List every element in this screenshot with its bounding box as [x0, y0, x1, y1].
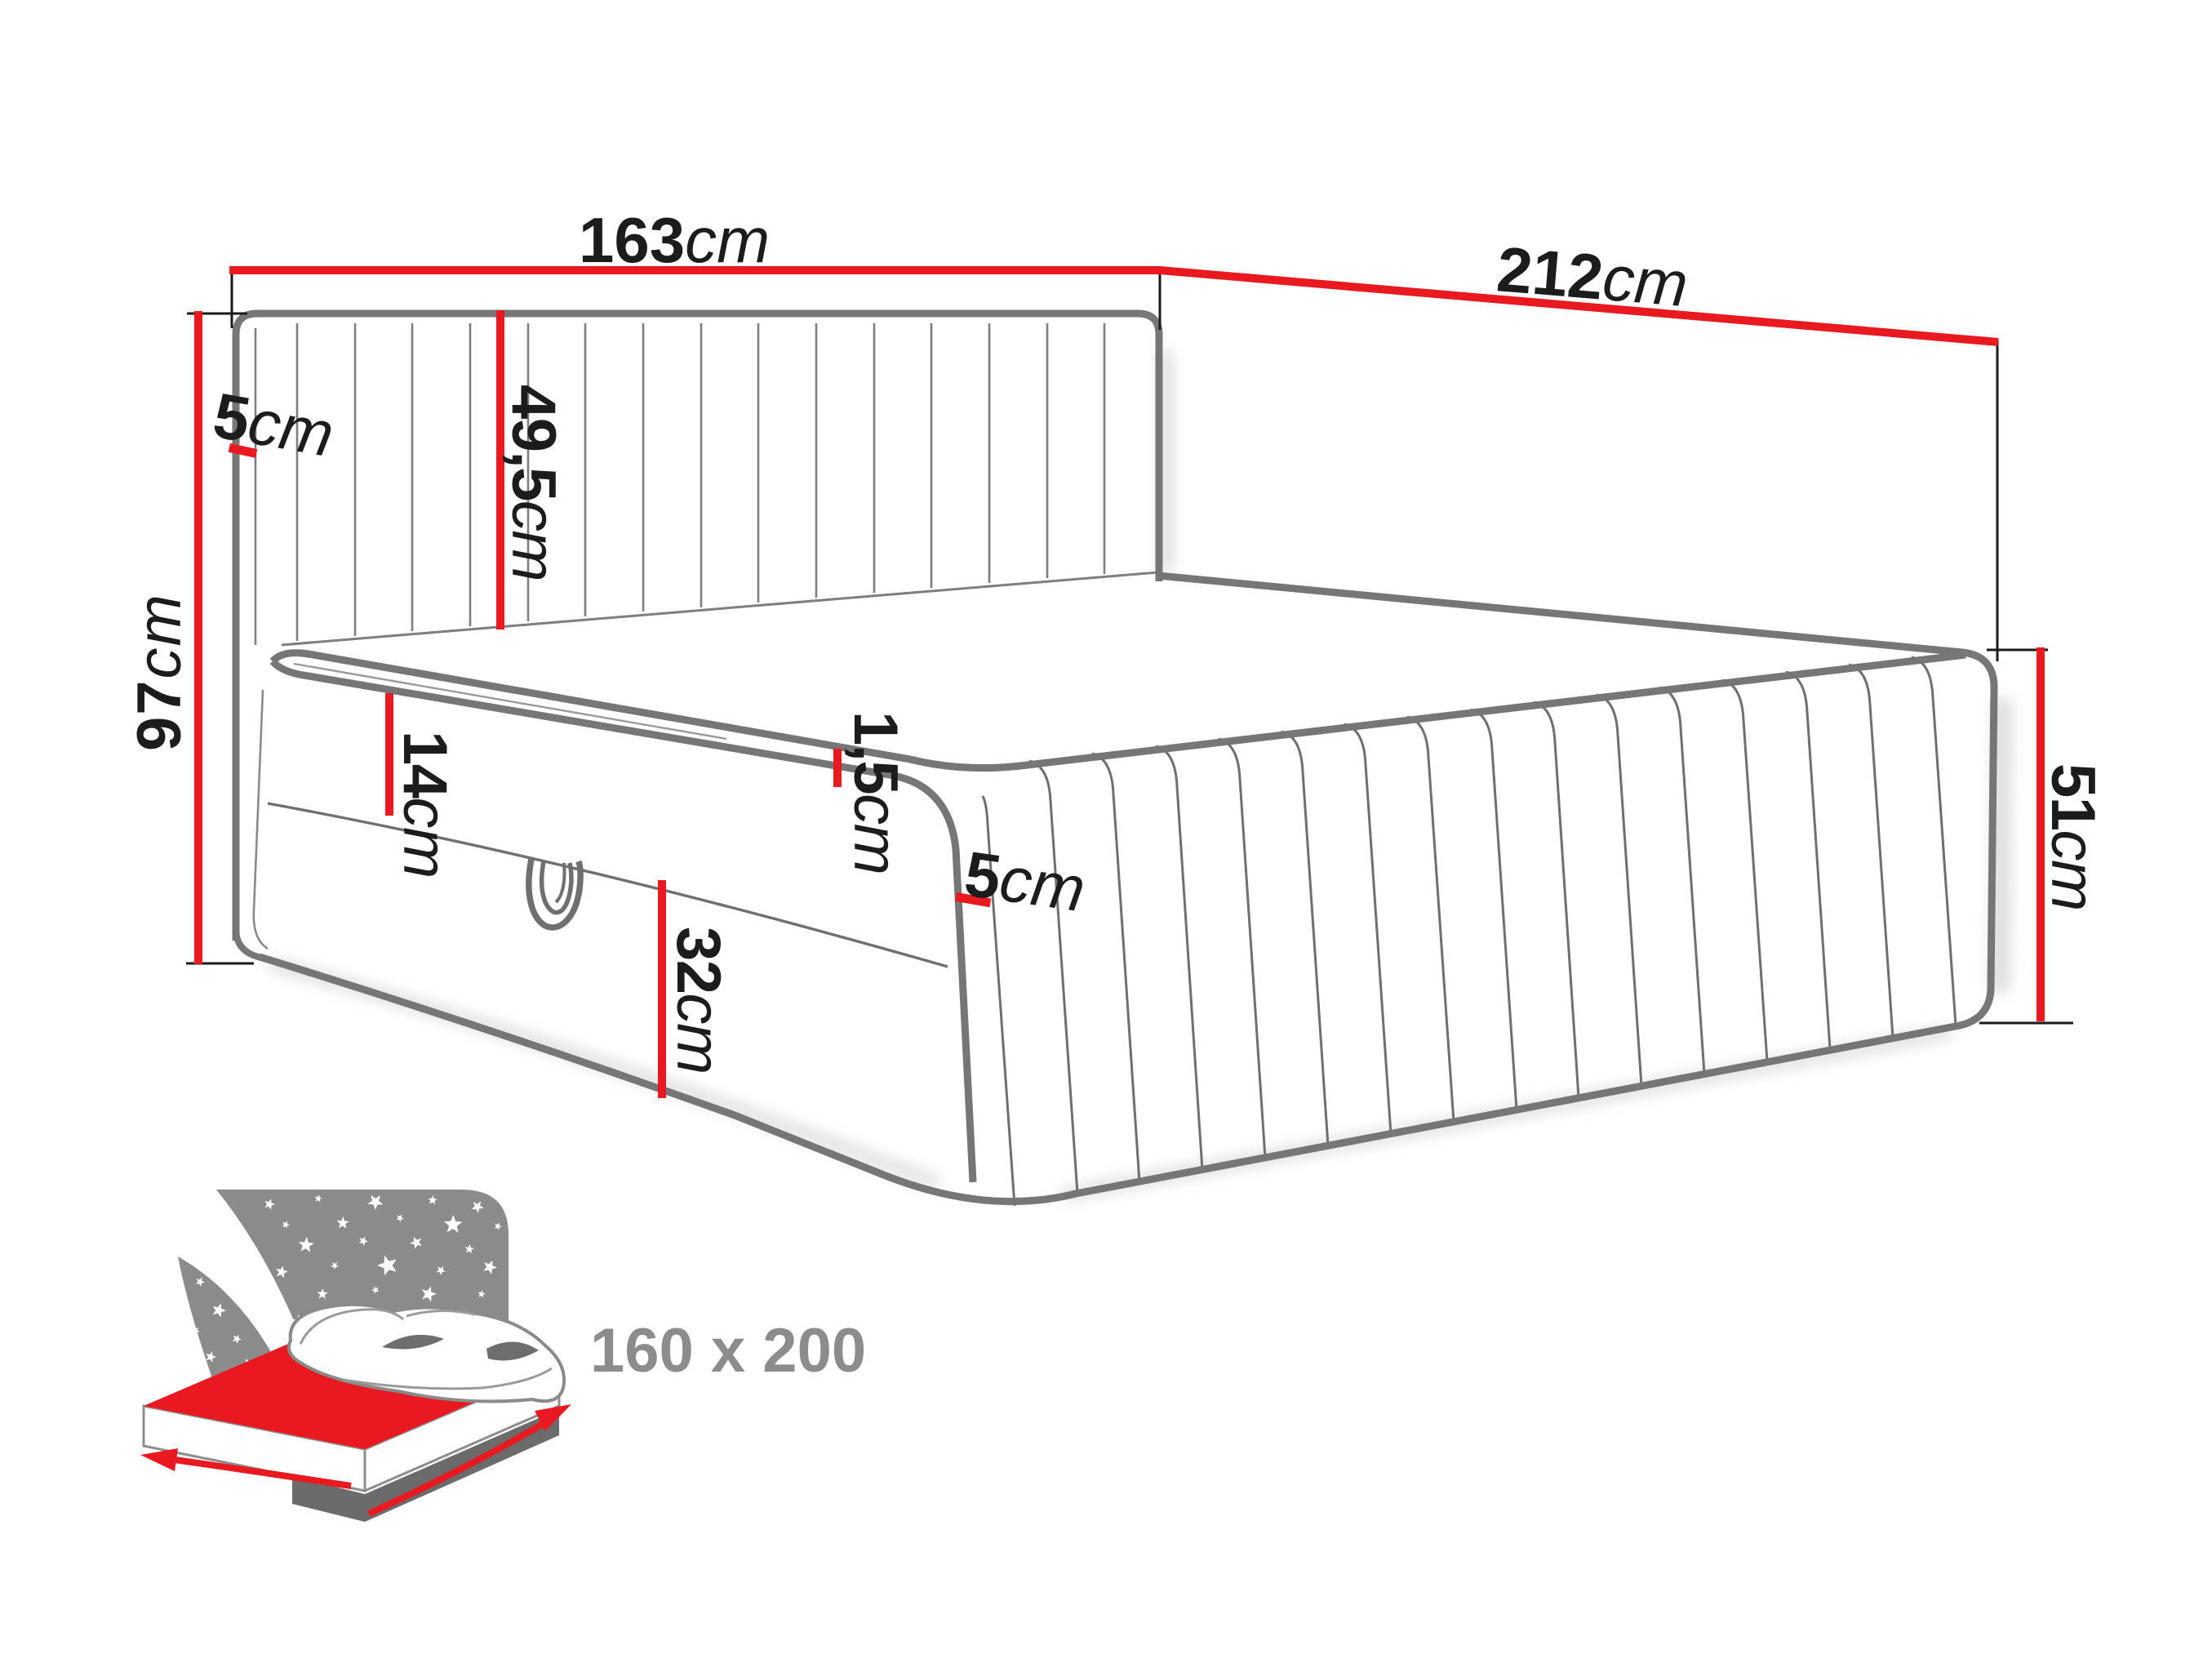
svg-text:49,5cm: 49,5cm [499, 385, 568, 580]
svg-text:160 x 200: 160 x 200 [590, 1316, 866, 1385]
svg-text:1,5cm: 1,5cm [841, 711, 910, 874]
svg-text:51cm: 51cm [2038, 763, 2108, 910]
svg-text:32cm: 32cm [664, 927, 733, 1074]
svg-text:163cm: 163cm [579, 204, 770, 276]
svg-text:14cm: 14cm [390, 731, 460, 878]
svg-text:97cm: 97cm [125, 593, 194, 751]
